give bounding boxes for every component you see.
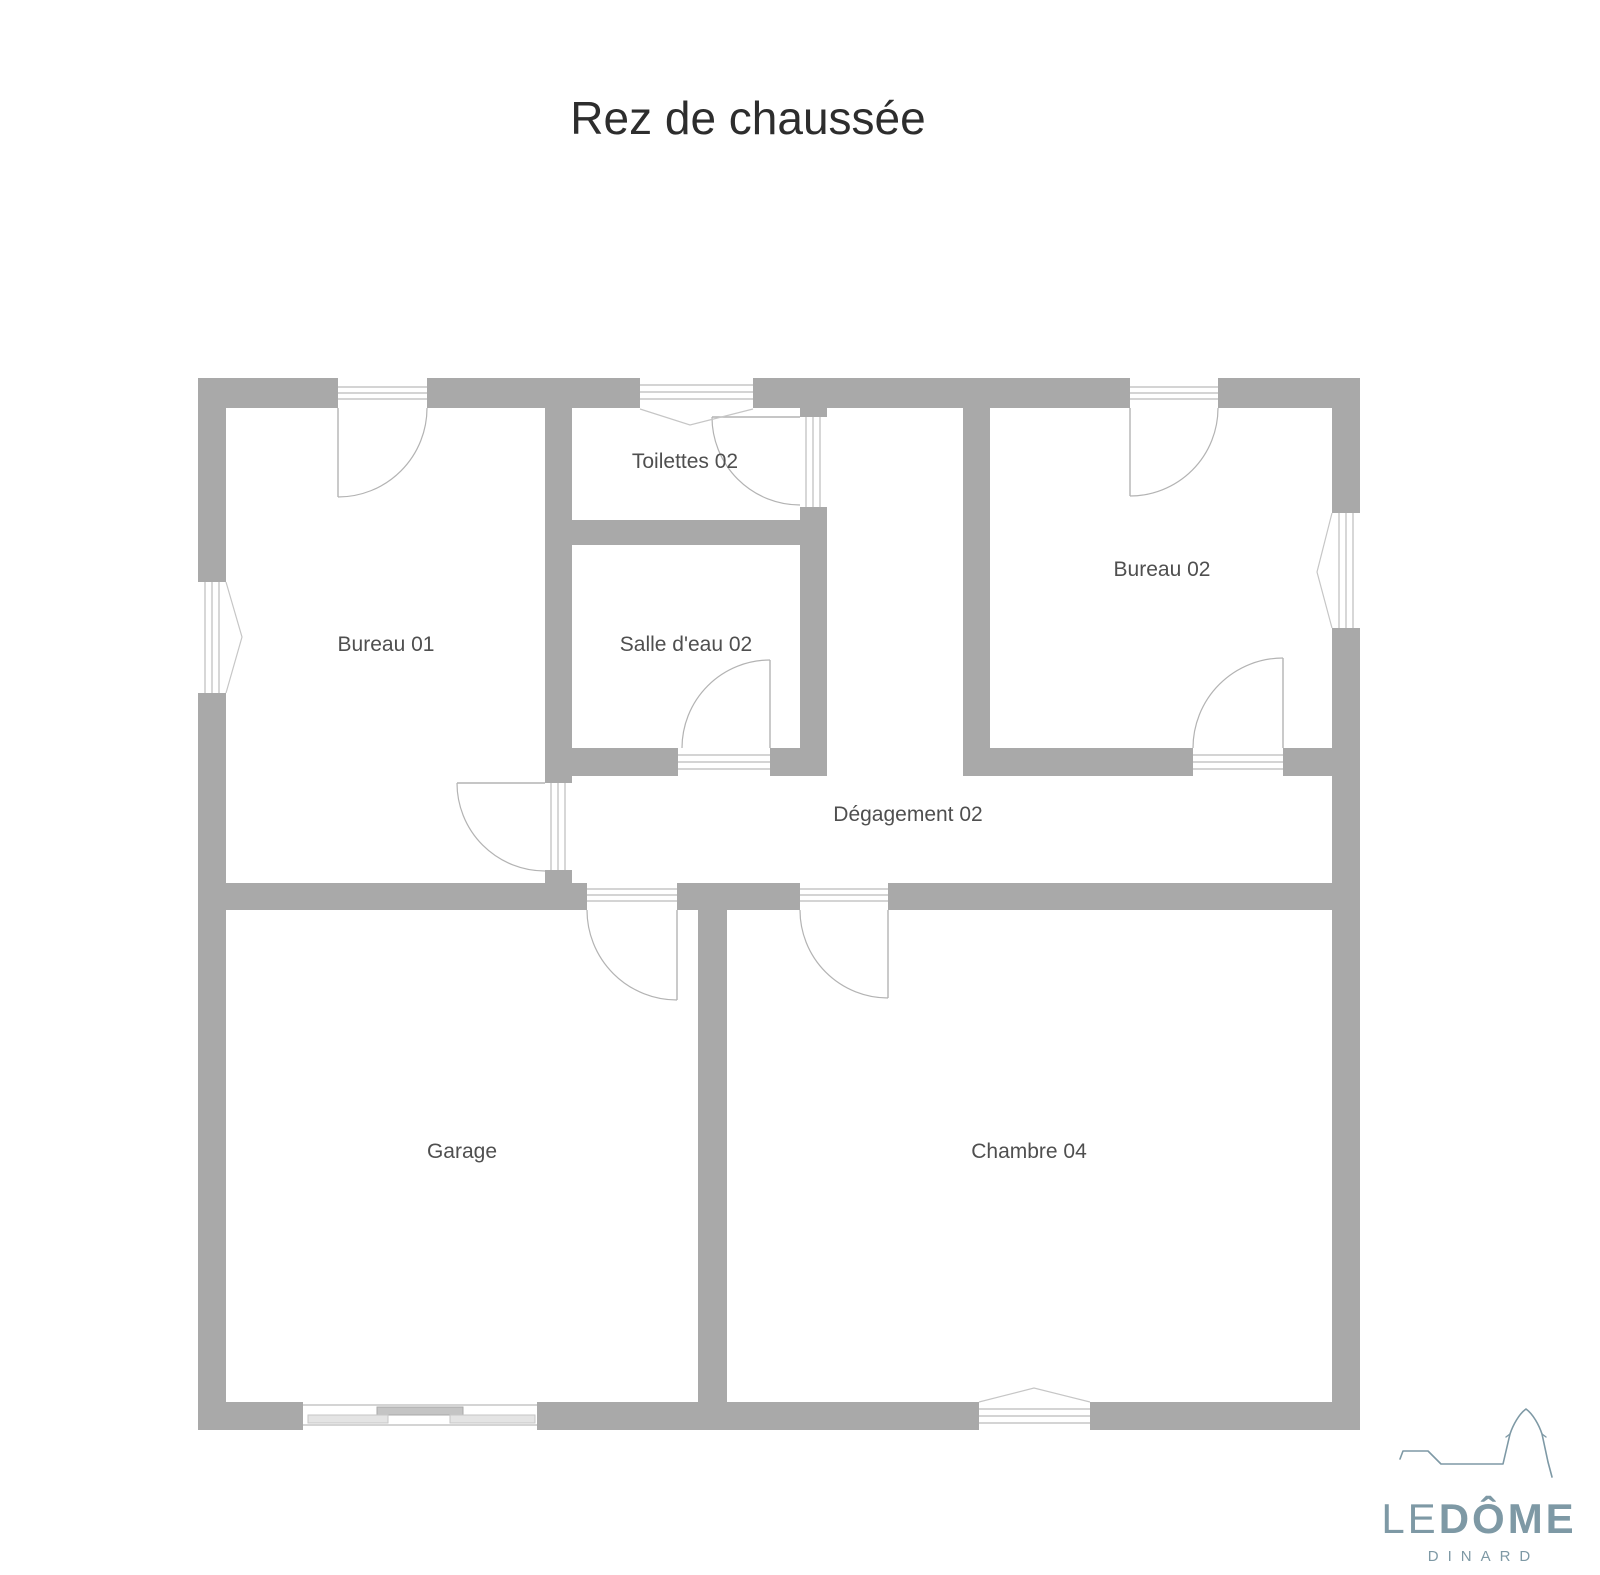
logo-subtitle: DINARD bbox=[1377, 1548, 1590, 1565]
building-silhouette-path bbox=[1400, 1409, 1552, 1477]
room-label-toilettes-02: Toilettes 02 bbox=[632, 450, 738, 474]
garage-door-panel-left bbox=[308, 1415, 388, 1423]
room-label-degagement-02: Dégagement 02 bbox=[833, 803, 982, 827]
floor-plan-drawing bbox=[0, 0, 1600, 1575]
door-bureau01-entry bbox=[338, 378, 427, 497]
door-swing-arc bbox=[1193, 658, 1283, 748]
door-swing-arc bbox=[682, 660, 770, 748]
logo-text-dome: DÔME bbox=[1439, 1495, 1577, 1542]
door-swing-arc bbox=[338, 408, 427, 497]
logo-text-le: LE bbox=[1381, 1495, 1438, 1542]
floor-plan-page: Rez de chaussée Bureau 01 Toilettes 02 S… bbox=[0, 0, 1600, 1575]
wall-bureau02-left bbox=[963, 408, 990, 748]
door-salledeau bbox=[678, 660, 770, 776]
room-label-bureau-01: Bureau 01 bbox=[338, 633, 435, 657]
room-label-chambre-04: Chambre 04 bbox=[971, 1140, 1087, 1164]
page-title: Rez de chaussée bbox=[570, 91, 925, 145]
wall-hallway-bottom bbox=[198, 883, 1332, 910]
room-label-garage: Garage bbox=[427, 1140, 497, 1164]
door-bureau02-top bbox=[1130, 378, 1218, 496]
wall-garage-chambre bbox=[698, 910, 727, 1402]
door-opening bbox=[800, 883, 888, 910]
door-garage bbox=[587, 883, 677, 1000]
window-toilettes-top bbox=[640, 378, 753, 425]
garage-sliding-door bbox=[303, 1402, 537, 1430]
garage-door-panel-right bbox=[450, 1415, 535, 1423]
window-bureau01-left bbox=[198, 582, 242, 693]
door-swing-arc bbox=[1130, 408, 1218, 496]
walls bbox=[198, 378, 1360, 1430]
dome-eaves-marks bbox=[1506, 1434, 1546, 1437]
building-outline-icon bbox=[1368, 1396, 1590, 1484]
window-casement-mark bbox=[979, 1388, 1090, 1402]
door-swing-arc bbox=[587, 910, 677, 1000]
room-label-bureau-02: Bureau 02 bbox=[1114, 558, 1211, 582]
room-label-salle-deau-02: Salle d'eau 02 bbox=[620, 633, 752, 657]
window-casement-mark bbox=[1317, 513, 1332, 628]
door-bureau01-hallway bbox=[457, 783, 572, 871]
window-casement-mark bbox=[226, 582, 242, 693]
door-opening bbox=[587, 883, 677, 910]
window-bureau02-right bbox=[1317, 513, 1360, 628]
brand-logo: LEDÔME DINARD bbox=[1368, 1396, 1590, 1565]
garage-door-panel-center bbox=[377, 1407, 463, 1415]
door-swing-arc bbox=[457, 783, 545, 871]
wall-toilettes-bottom bbox=[572, 520, 800, 545]
door-swing-arc bbox=[800, 910, 888, 998]
window-opening bbox=[640, 378, 753, 408]
logo-wordmark: LEDÔME bbox=[1368, 1495, 1590, 1543]
window-chambre04-bottom bbox=[979, 1388, 1090, 1430]
door-chambre04 bbox=[800, 883, 888, 998]
door-bureau02-hallway bbox=[1193, 658, 1283, 776]
